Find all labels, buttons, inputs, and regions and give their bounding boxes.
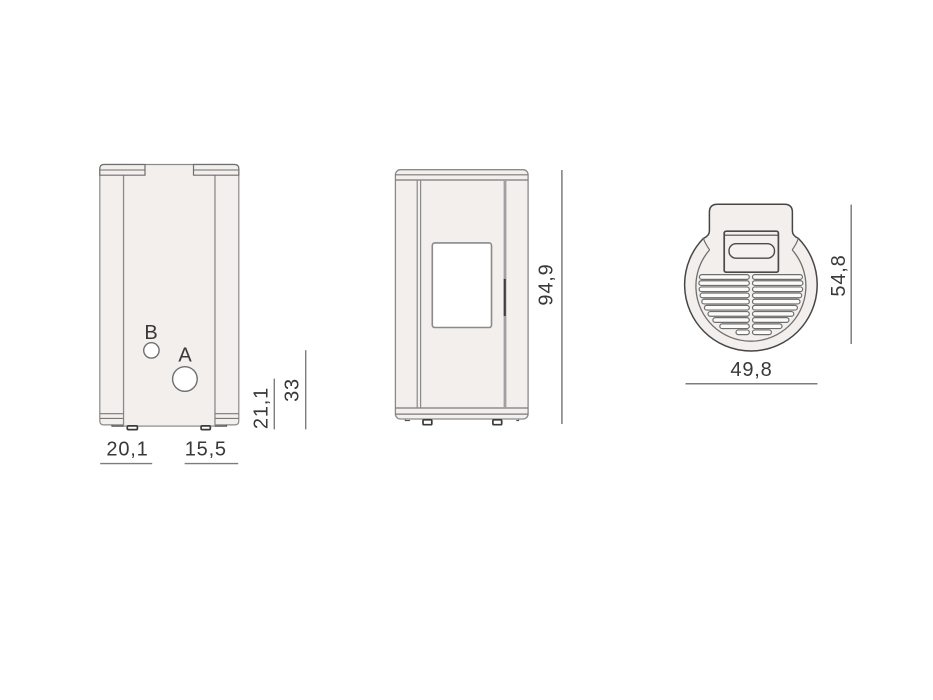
svg-text:94,9: 94,9 <box>535 263 557 305</box>
svg-text:21,1: 21,1 <box>250 387 272 429</box>
svg-text:20,1: 20,1 <box>106 439 148 461</box>
svg-text:15,5: 15,5 <box>185 439 227 461</box>
svg-text:B: B <box>144 322 157 344</box>
svg-text:54,8: 54,8 <box>828 254 850 296</box>
svg-text:33: 33 <box>282 378 304 402</box>
svg-text:A: A <box>178 345 192 367</box>
svg-text:49,8: 49,8 <box>730 359 772 381</box>
